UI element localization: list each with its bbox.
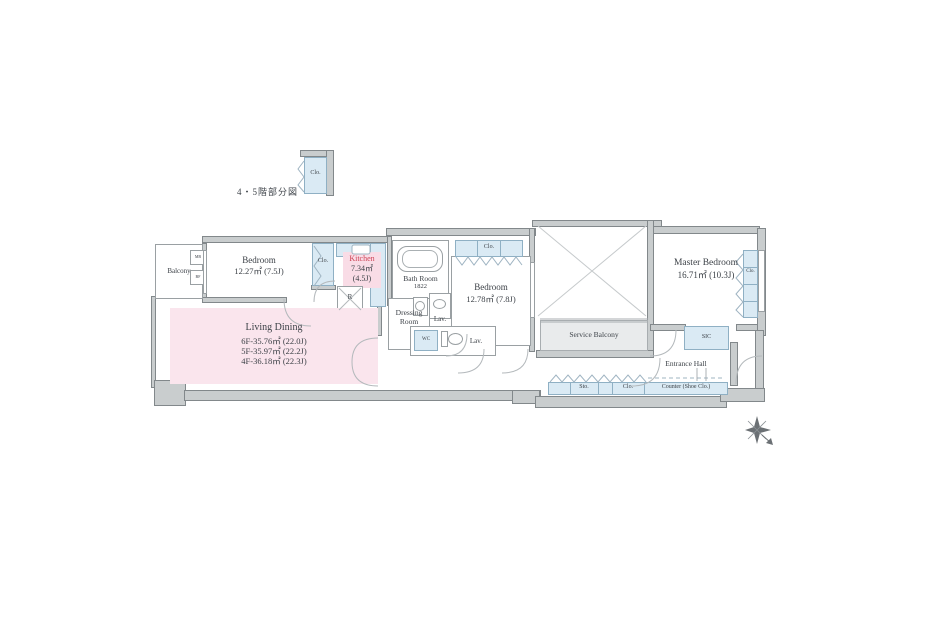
- dressing-room-label-1: Dressing: [386, 308, 432, 317]
- wall: [650, 324, 686, 331]
- living-dining-area-4f: 4F-36.18㎡ (22.3J): [170, 356, 378, 366]
- bathroom-size: 1822: [392, 283, 449, 291]
- sic-label: SIC: [684, 334, 729, 341]
- closet-divider: [743, 301, 758, 302]
- bedroom1-name: Bedroom: [206, 255, 312, 266]
- kitchen-name: Kitchen: [343, 254, 381, 264]
- lavatory2-label: Lav.: [462, 337, 490, 345]
- kitchen-tatami: (4.5J): [343, 274, 381, 284]
- wall: [326, 150, 334, 196]
- bedroom2-area: 12.78㎡ (7.8J): [451, 294, 531, 304]
- wall: [755, 330, 764, 394]
- toilet-tank: [441, 331, 448, 347]
- storage-sto-label: Sto.: [570, 384, 598, 391]
- wall: [386, 228, 536, 236]
- wall: [184, 390, 541, 401]
- wall: [202, 297, 287, 303]
- bedroom1-area: 12.27㎡ (7.5J): [206, 266, 312, 276]
- wall: [730, 342, 738, 386]
- service-balcony-label: Service Balcony: [540, 330, 648, 339]
- refrigerator-label: R: [337, 293, 363, 301]
- closet2-label: Clo.: [455, 244, 523, 251]
- wall: [647, 220, 654, 354]
- entrance-hall-label: Entrance Hall: [648, 359, 724, 368]
- meter-box-bottom-label: BF: [190, 275, 206, 280]
- dressing-room-label-2: Room: [386, 317, 432, 326]
- closet-divider: [743, 284, 758, 285]
- toilet-bowl: [448, 333, 463, 345]
- wc-label: WC: [414, 337, 438, 343]
- wall: [736, 324, 758, 331]
- storage-divider: [598, 382, 599, 395]
- living-dining-area-6f: 6F-35.76㎡ (22.0J): [170, 336, 378, 346]
- master-bedroom-name: Master Bedroom: [654, 258, 758, 269]
- bathtub-inner: [402, 250, 438, 268]
- lavatory1-label: Lav.: [427, 315, 453, 323]
- detached-closet-label: Clo.: [304, 170, 327, 177]
- compass-icon: [745, 416, 773, 445]
- wall: [535, 396, 727, 408]
- bedroom2-name: Bedroom: [451, 282, 531, 293]
- window: [758, 250, 765, 312]
- bathroom-name: Bath Room: [392, 274, 449, 283]
- lavatory-basin: [433, 299, 446, 309]
- kitchen-area: 7.34㎡: [343, 264, 381, 274]
- floor-plan: Clo. 4・5階部分図: [0, 0, 947, 628]
- wall: [532, 220, 654, 227]
- partial-plan-label: 4・5階部分図: [237, 187, 317, 198]
- wall: [202, 236, 390, 243]
- meter-box-top-label: MB: [190, 255, 206, 260]
- wall: [536, 350, 654, 358]
- storage-counter-label: Counter (Shoe Clo.): [644, 384, 728, 391]
- living-dining-name: Living Dining: [170, 322, 378, 334]
- living-dining-area-5f: 5F-35.97㎡ (22.2J): [170, 346, 378, 356]
- closet1-label: Clo.: [312, 258, 334, 265]
- closet3-label: Clo.: [743, 269, 758, 275]
- wall: [648, 226, 760, 234]
- storage-clo-label: Clo.: [612, 384, 644, 391]
- wall: [151, 296, 156, 388]
